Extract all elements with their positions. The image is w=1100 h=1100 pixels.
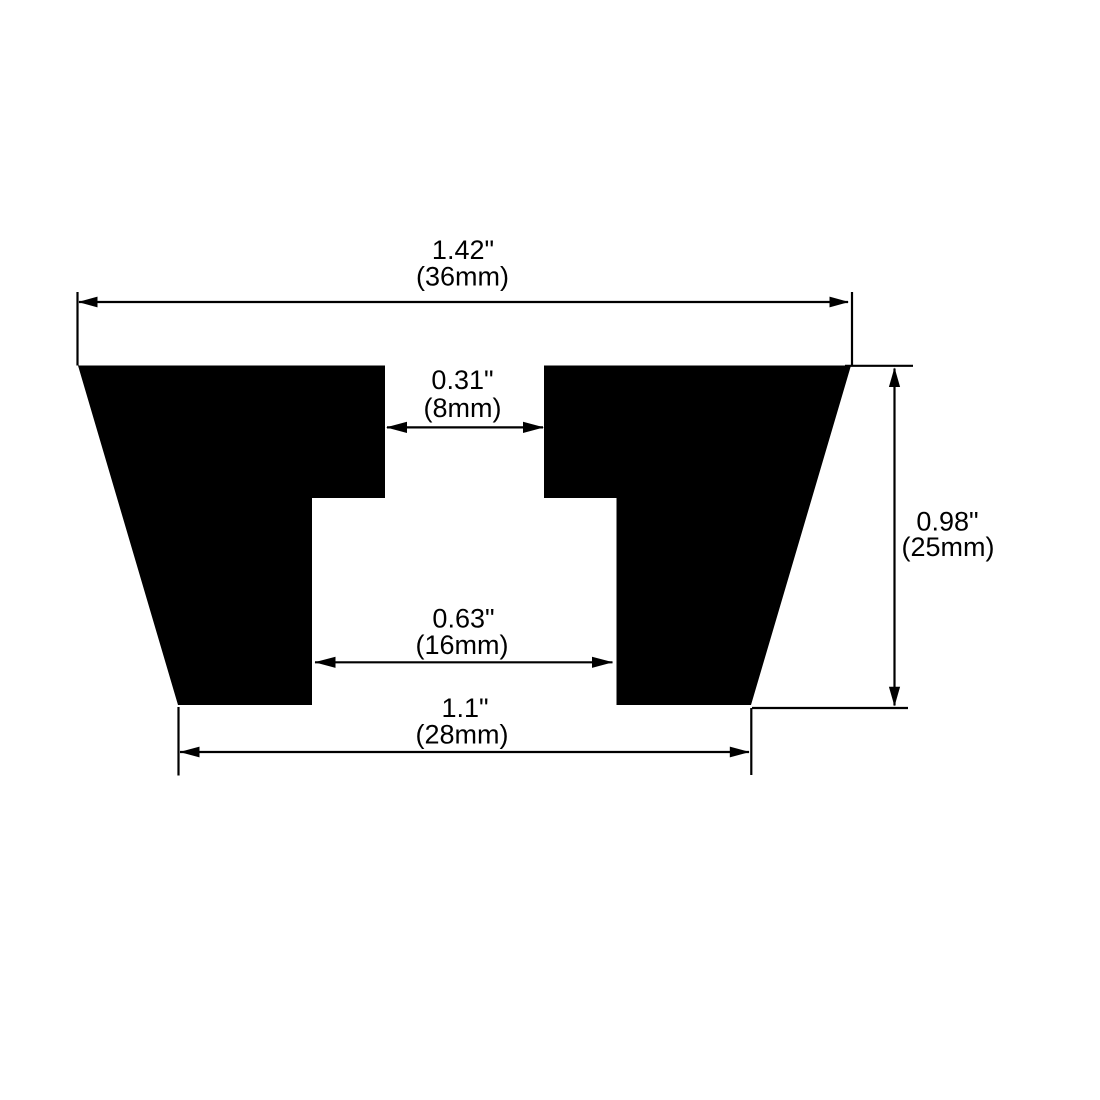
svg-text:0.63": 0.63" xyxy=(432,604,494,634)
svg-text:(16mm): (16mm) xyxy=(416,630,509,660)
svg-text:(8mm): (8mm) xyxy=(424,393,502,423)
svg-text:(36mm): (36mm) xyxy=(416,262,509,292)
svg-text:0.31": 0.31" xyxy=(431,365,493,395)
svg-text:(28mm): (28mm) xyxy=(416,720,509,750)
svg-text:1.1": 1.1" xyxy=(441,693,488,723)
svg-text:1.42": 1.42" xyxy=(432,235,494,265)
svg-text:(25mm): (25mm) xyxy=(902,532,995,562)
